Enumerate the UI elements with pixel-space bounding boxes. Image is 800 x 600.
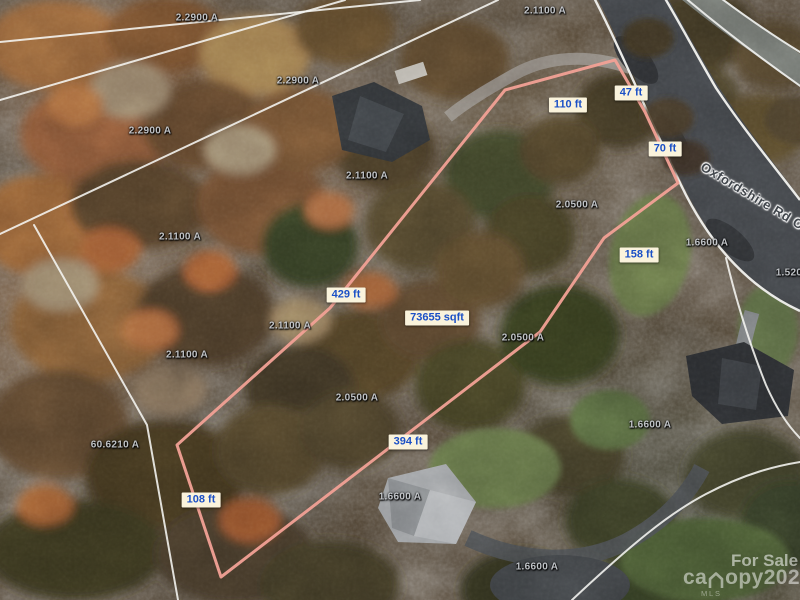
acreage-label: 2.1100 A	[524, 6, 566, 17]
acreage-label: 2.0500 A	[556, 200, 599, 211]
house-icon	[708, 571, 724, 589]
acreage-label: 60.6210 A	[91, 440, 139, 451]
watermark-year: 2023	[764, 566, 800, 590]
acreage-label: 2.1100 A	[159, 232, 201, 243]
watermark-canopy-logo: ca opy 2023	[683, 566, 800, 590]
acreage-label: 1.6600 A	[629, 420, 672, 431]
acreage-label: 2.2900 A	[176, 13, 219, 24]
measurement-label[interactable]: 73655 sqft	[405, 311, 469, 326]
measurement-label[interactable]: 70 ft	[649, 142, 682, 157]
acreage-label: 2.0500 A	[502, 333, 545, 344]
acreage-label: 2.1100 A	[166, 350, 208, 361]
measurement-label[interactable]: 429 ft	[327, 288, 366, 303]
watermark-mls: MLS	[701, 589, 722, 598]
watermark-brand-suffix: opy	[725, 566, 764, 590]
acreage-label: 2.2900 A	[277, 76, 320, 87]
acreage-label: 1.5200 A	[776, 268, 800, 279]
acreage-label: 1.6600 A	[379, 492, 422, 503]
measurement-label[interactable]: 110 ft	[549, 98, 587, 113]
measurement-label[interactable]: 394 ft	[389, 435, 428, 450]
acreage-label: 2.1100 A	[269, 321, 311, 332]
acreage-label: 1.6600 A	[516, 562, 559, 573]
acreage-label: 2.2900 A	[129, 126, 172, 137]
acreage-label: 2.1100 A	[346, 171, 388, 182]
measurement-label[interactable]: 158 ft	[620, 248, 659, 263]
watermark-brand-prefix: ca	[683, 566, 707, 590]
measurement-label[interactable]: 108 ft	[182, 493, 221, 508]
measurement-label[interactable]: 47 ft	[615, 86, 648, 101]
satellite-layer	[0, 0, 800, 600]
acreage-label: 1.6600 A	[686, 238, 729, 249]
acreage-label: 2.0500 A	[336, 393, 379, 404]
map-canvas[interactable]: Oxfordshire Rd O 110 ft47 ft70 ft158 ft4…	[0, 0, 800, 600]
